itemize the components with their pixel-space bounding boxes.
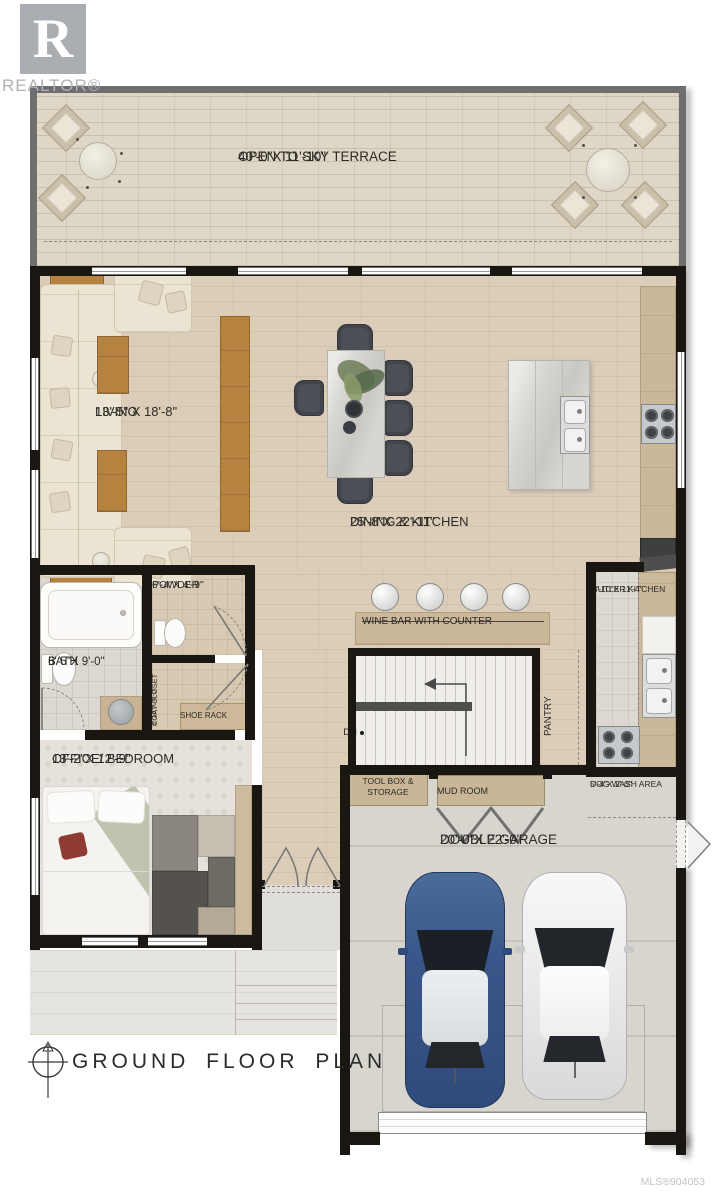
car-roof bbox=[540, 966, 609, 1040]
butler-appliance bbox=[642, 616, 676, 654]
realtor-wordmark: REALTOR® bbox=[2, 76, 122, 96]
sink-drain bbox=[662, 668, 667, 673]
bathtub bbox=[40, 582, 142, 648]
terrace-wall-top bbox=[30, 86, 686, 93]
wall bbox=[340, 765, 440, 775]
window bbox=[31, 798, 39, 895]
wall bbox=[676, 266, 686, 822]
wall bbox=[348, 648, 356, 768]
dining-chair bbox=[383, 400, 413, 436]
car-antenna bbox=[574, 1062, 576, 1078]
wall bbox=[676, 866, 686, 1155]
bed-pillow bbox=[46, 790, 96, 824]
wall bbox=[340, 765, 350, 1155]
wall bbox=[586, 767, 686, 777]
burner bbox=[661, 426, 674, 439]
terrace-dot bbox=[118, 180, 121, 183]
porch-step-divider bbox=[235, 950, 236, 1035]
car-rear-window bbox=[542, 1036, 607, 1062]
burner bbox=[645, 409, 658, 422]
stairs-dn-label: DN bbox=[322, 727, 364, 740]
car-mirror bbox=[502, 948, 512, 955]
porch-step bbox=[235, 1019, 337, 1020]
area-rug-block bbox=[208, 857, 235, 907]
bed-pillow bbox=[97, 790, 146, 824]
dog-wash-dashed bbox=[588, 817, 676, 818]
island-seam bbox=[535, 361, 536, 489]
coffee-table bbox=[97, 336, 129, 394]
car-mirror bbox=[624, 946, 634, 953]
bar-stool bbox=[371, 583, 399, 611]
wall bbox=[532, 648, 540, 768]
wall bbox=[30, 935, 262, 948]
bed-fold-line bbox=[43, 871, 150, 872]
mls-number: MLS®904053 bbox=[565, 1176, 705, 1188]
dining-chair bbox=[383, 360, 413, 396]
entry-double-door bbox=[258, 842, 346, 890]
realtor-logo: R bbox=[20, 4, 86, 74]
sink-drain bbox=[577, 409, 582, 414]
terrace-dot bbox=[582, 144, 585, 147]
terrace-dashed-line bbox=[44, 241, 672, 242]
dining-chair bbox=[294, 380, 324, 416]
window bbox=[92, 267, 186, 275]
wall bbox=[586, 570, 596, 775]
sofa-main bbox=[40, 284, 122, 578]
area-rug-block bbox=[198, 815, 235, 857]
tub-drain bbox=[120, 610, 126, 616]
powder-toilet-bowl bbox=[164, 618, 186, 648]
bar-stool bbox=[416, 583, 444, 611]
north-compass-icon bbox=[26, 1042, 70, 1100]
area-rug-block bbox=[152, 815, 198, 871]
porch-deck bbox=[30, 950, 337, 1035]
window bbox=[82, 937, 138, 946]
car-roof bbox=[422, 970, 488, 1046]
room-label-wine-bar: WINE BAR WITH COUNTER bbox=[362, 621, 544, 622]
car-mirror bbox=[515, 946, 525, 953]
bar-stool bbox=[460, 583, 488, 611]
stair-direction-arrow bbox=[356, 656, 532, 765]
terrace-wall-right bbox=[679, 86, 686, 266]
car-mirror bbox=[398, 948, 408, 955]
wall bbox=[350, 1132, 380, 1145]
wall bbox=[645, 1132, 686, 1145]
wall bbox=[586, 562, 644, 572]
throw-pillow bbox=[164, 290, 188, 314]
throw-pillow bbox=[51, 335, 74, 358]
burner bbox=[661, 409, 674, 422]
porch-step bbox=[235, 1003, 337, 1004]
burner bbox=[603, 731, 615, 743]
terrace-dot bbox=[120, 152, 123, 155]
burner bbox=[645, 426, 658, 439]
pantry-dashed-line bbox=[578, 650, 579, 765]
room-label-pantry: PANTRY bbox=[542, 676, 556, 736]
throw-pillow bbox=[50, 438, 73, 461]
dining-chair bbox=[337, 474, 373, 504]
sink-drain bbox=[662, 698, 667, 703]
butler-sink-bowl bbox=[646, 658, 672, 684]
sink-drain bbox=[577, 437, 582, 442]
area-rug-block bbox=[198, 907, 235, 935]
dining-chair bbox=[383, 440, 413, 476]
coffee-table bbox=[97, 450, 127, 512]
terrace-dot bbox=[634, 144, 637, 147]
island-sink-bowl bbox=[564, 400, 586, 424]
dn-dot bbox=[360, 731, 364, 735]
bath-door-swing bbox=[38, 686, 88, 734]
terrace-dot bbox=[76, 138, 79, 141]
entry-threshold bbox=[262, 886, 340, 887]
bar-stool bbox=[502, 583, 530, 611]
burner bbox=[621, 747, 633, 759]
window bbox=[677, 352, 685, 488]
terrace-table bbox=[586, 148, 630, 192]
window bbox=[238, 267, 348, 275]
bath-basin bbox=[108, 699, 134, 725]
table-bowl bbox=[345, 400, 363, 418]
burner bbox=[621, 731, 633, 743]
burner bbox=[603, 747, 615, 759]
window bbox=[31, 358, 39, 450]
window bbox=[148, 937, 207, 946]
entry-landing bbox=[262, 885, 340, 950]
garage-side-door-swing bbox=[684, 816, 715, 872]
butler-sink-bowl bbox=[646, 688, 672, 714]
car-white bbox=[522, 872, 627, 1100]
wall bbox=[348, 648, 540, 656]
floor-plan: OPEN TO SKY TERRACE40'-0"X 11'-10" LIVIN… bbox=[0, 0, 715, 1200]
terrace-wall-left bbox=[30, 86, 37, 266]
window bbox=[362, 267, 490, 275]
realtor-logo-letter: R bbox=[33, 11, 73, 67]
entry-threshold bbox=[262, 892, 340, 893]
mud-door-post bbox=[543, 765, 552, 779]
garage-door bbox=[378, 1112, 647, 1134]
window bbox=[31, 470, 39, 558]
terrace-dot bbox=[86, 186, 89, 189]
powder-door-swing bbox=[206, 596, 250, 660]
wall bbox=[142, 565, 152, 740]
window bbox=[512, 267, 642, 275]
media-console bbox=[220, 316, 250, 532]
plan-title: GROUND FLOOR PLAN bbox=[72, 1050, 492, 1074]
office-desk bbox=[235, 785, 252, 935]
island-sink-bowl bbox=[564, 428, 586, 452]
terrace-dot bbox=[634, 196, 637, 199]
wall bbox=[30, 730, 38, 740]
throw-pillow bbox=[49, 387, 71, 409]
table-bowl bbox=[343, 421, 356, 434]
porch-step bbox=[235, 985, 337, 986]
sofa-seam bbox=[78, 290, 79, 572]
throw-pillow bbox=[49, 491, 72, 514]
terrace-dot bbox=[582, 196, 585, 199]
mud-door-post bbox=[429, 765, 438, 779]
closet-door-swing bbox=[200, 660, 252, 732]
terrace-table bbox=[79, 142, 117, 180]
